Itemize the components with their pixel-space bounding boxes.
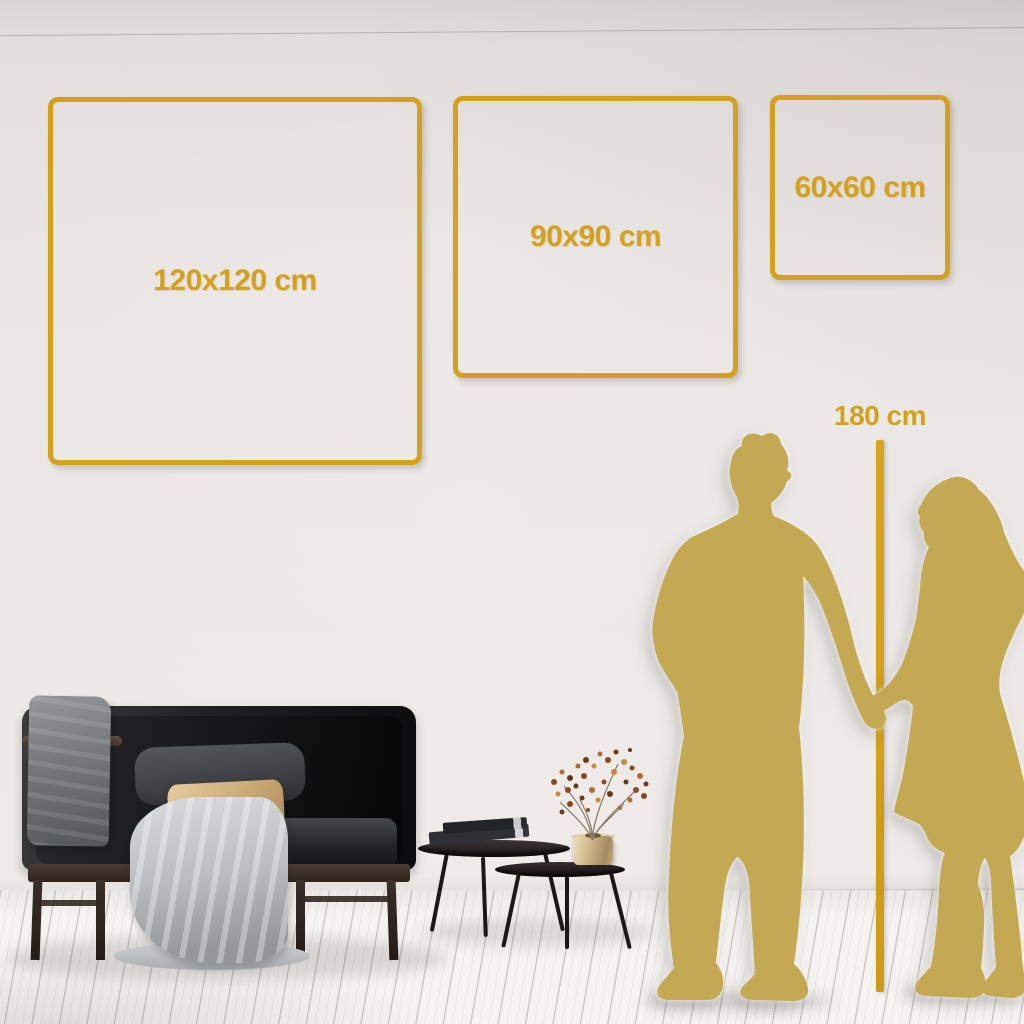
sofa-stretcher — [298, 896, 394, 902]
sofa-leg — [296, 880, 305, 960]
size-label-120x120: 120x120 cm — [153, 264, 317, 298]
size-square-120x120: 120x120 cm — [48, 97, 422, 465]
size-square-60x60: 60x60 cm — [770, 95, 950, 280]
sofa-light-throw — [130, 797, 288, 963]
sofa-stretcher — [34, 900, 104, 906]
sofa-gray-blanket — [27, 695, 112, 846]
sofa-leg — [31, 880, 43, 960]
table-leg — [481, 857, 488, 937]
sofa — [18, 702, 420, 974]
table-leg — [565, 875, 569, 949]
size-label-90x90: 90x90 cm — [530, 220, 661, 254]
man-silhouette — [652, 433, 886, 1001]
room-scene: 120x120 cm 90x90 cm 60x60 cm 180 cm — [0, 0, 1024, 1024]
size-label-60x60: 60x60 cm — [794, 171, 925, 205]
couple-silhouette — [600, 425, 1024, 1024]
sofa-leg — [387, 880, 399, 960]
table-leg — [501, 873, 521, 948]
sofa-leg — [96, 880, 105, 960]
table-leg — [430, 853, 449, 932]
woman-silhouette — [864, 477, 1024, 998]
size-square-90x90: 90x90 cm — [453, 96, 738, 378]
